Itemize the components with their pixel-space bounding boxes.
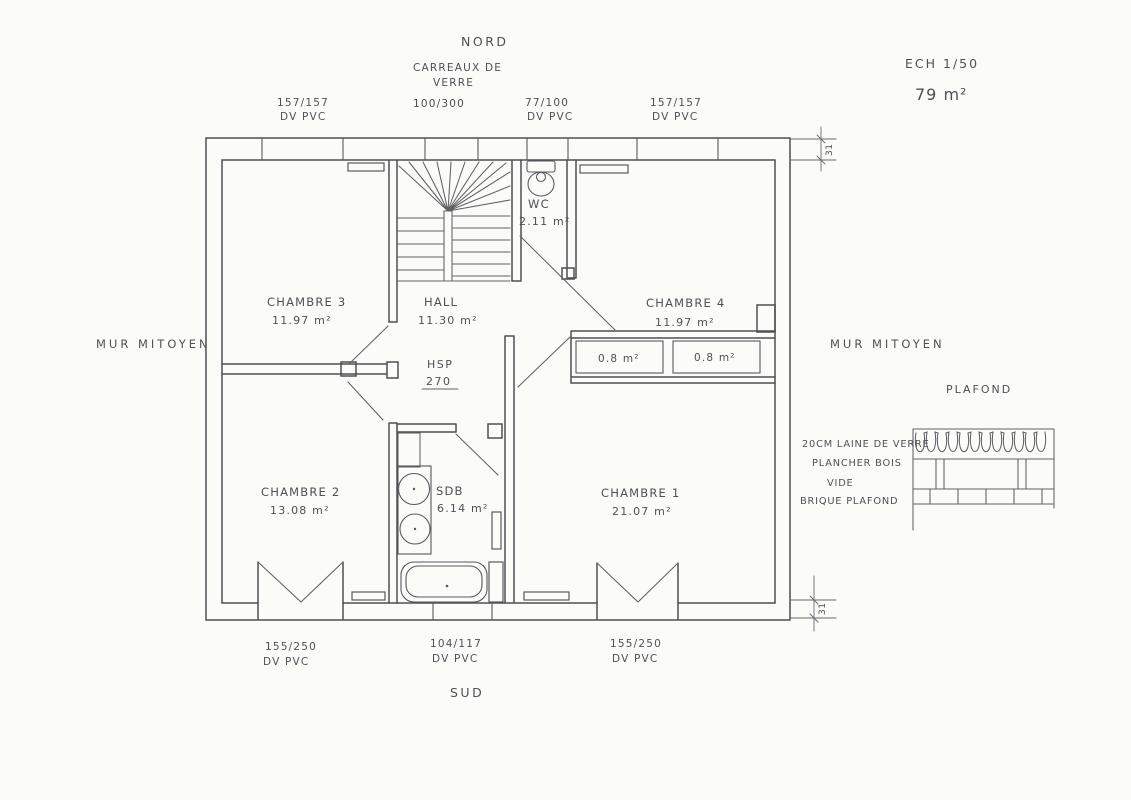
total-area-label: 79 m²	[915, 85, 967, 104]
dim-31-top: 31	[825, 144, 835, 156]
ceiling-layer-insulation: 20CM LAINE DE VERRE	[802, 439, 930, 450]
radiator-chambre3	[348, 163, 384, 171]
dimension-wall-thickness-bottom: 31	[791, 576, 836, 631]
window-top-wc-frame: DV PVC	[527, 111, 573, 123]
room-wc-area: 2.11 m²	[519, 215, 571, 228]
compass-south-label: SUD	[450, 685, 484, 700]
glass-blocks-name-1: CARREAUX DE	[413, 62, 502, 74]
sdb-towel-radiator	[489, 562, 503, 602]
ceiling-height-value: 270	[426, 375, 452, 388]
exterior-walls	[206, 138, 790, 620]
window-bottom-left-frame: DV PVC	[263, 656, 309, 668]
bottom-wall-window-divisions	[433, 603, 492, 620]
scanned-floor-plan: 31 31 NORD SUD ECH 1/50 79 m² 157/157 DV…	[0, 0, 1131, 800]
room-chambre4-area: 11.97 m²	[655, 316, 715, 329]
room-hall-area: 11.30 m²	[418, 314, 478, 327]
glass-blocks-name-2: VERRE	[433, 77, 474, 89]
room-chambre1-name: CHAMBRE 1	[601, 486, 680, 500]
window-bottom-middle-size: 104/117	[430, 638, 482, 650]
interior-walls	[222, 160, 775, 603]
french-window-chambre2	[258, 562, 343, 619]
sdb-vanity-basins	[398, 466, 431, 554]
french-window-chambre1	[597, 563, 678, 619]
room-hall-name: HALL	[424, 295, 458, 309]
closet-left-area: 0.8 m²	[598, 353, 640, 365]
wc-toilet	[527, 161, 555, 196]
window-top-right-frame: DV PVC	[652, 111, 698, 123]
room-chambre1-area: 21.07 m²	[612, 505, 672, 518]
sdb-bathtub	[401, 562, 487, 602]
ceiling-height-label: HSP	[427, 358, 453, 371]
room-sdb-name: SDB	[436, 484, 464, 498]
dimension-wall-thickness-top: 31	[791, 127, 836, 171]
ceiling-layer-void: VIDE	[827, 478, 854, 489]
ceiling-layer-wood-floor: PLANCHER BOIS	[812, 458, 902, 469]
window-top-wc-size: 77/100	[525, 97, 569, 109]
window-bottom-left-size: 155/250	[265, 641, 317, 653]
dim-31-bottom: 31	[818, 603, 828, 615]
window-bottom-right-size: 155/250	[610, 638, 662, 650]
window-bottom-middle-frame: DV PVC	[432, 653, 478, 665]
window-top-left-frame: DV PVC	[280, 111, 326, 123]
room-chambre4-name: CHAMBRE 4	[646, 296, 725, 310]
party-wall-right-label: MUR MITOYEN	[830, 337, 945, 351]
sdb-wall-radiator	[492, 512, 501, 549]
radiator-chambre4	[580, 165, 628, 173]
floor-plan-svg: 31 31 NORD SUD ECH 1/50 79 m² 157/157 DV…	[0, 0, 1131, 800]
room-chambre2-name: CHAMBRE 2	[261, 485, 340, 499]
window-bottom-right-frame: DV PVC	[612, 653, 658, 665]
window-top-left-size: 157/157	[277, 97, 329, 109]
room-sdb-area: 6.14 m²	[437, 502, 489, 515]
closet-right-area: 0.8 m²	[694, 352, 736, 364]
door-swings	[348, 236, 615, 475]
room-chambre3-area: 11.97 m²	[272, 314, 332, 327]
ceiling-layer-brick: BRIQUE PLAFOND	[800, 496, 898, 507]
window-top-right-size: 157/157	[650, 97, 702, 109]
room-chambre3-name: CHAMBRE 3	[267, 295, 346, 309]
room-wc-name: WC	[528, 197, 550, 211]
party-wall-left-label: MUR MITOYEN	[96, 337, 211, 351]
ceiling-detail-title: PLAFOND	[946, 383, 1012, 396]
top-wall-window-divisions	[262, 138, 718, 160]
radiator-chambre2	[352, 592, 385, 600]
compass-north-label: NORD	[461, 34, 509, 49]
scale-label: ECH 1/50	[905, 56, 979, 71]
radiator-chambre1	[524, 592, 569, 600]
glass-blocks-size: 100/300	[413, 98, 465, 110]
staircase	[398, 162, 510, 281]
room-chambre2-area: 13.08 m²	[270, 504, 330, 517]
ceiling-detail-drawing	[913, 429, 1054, 530]
